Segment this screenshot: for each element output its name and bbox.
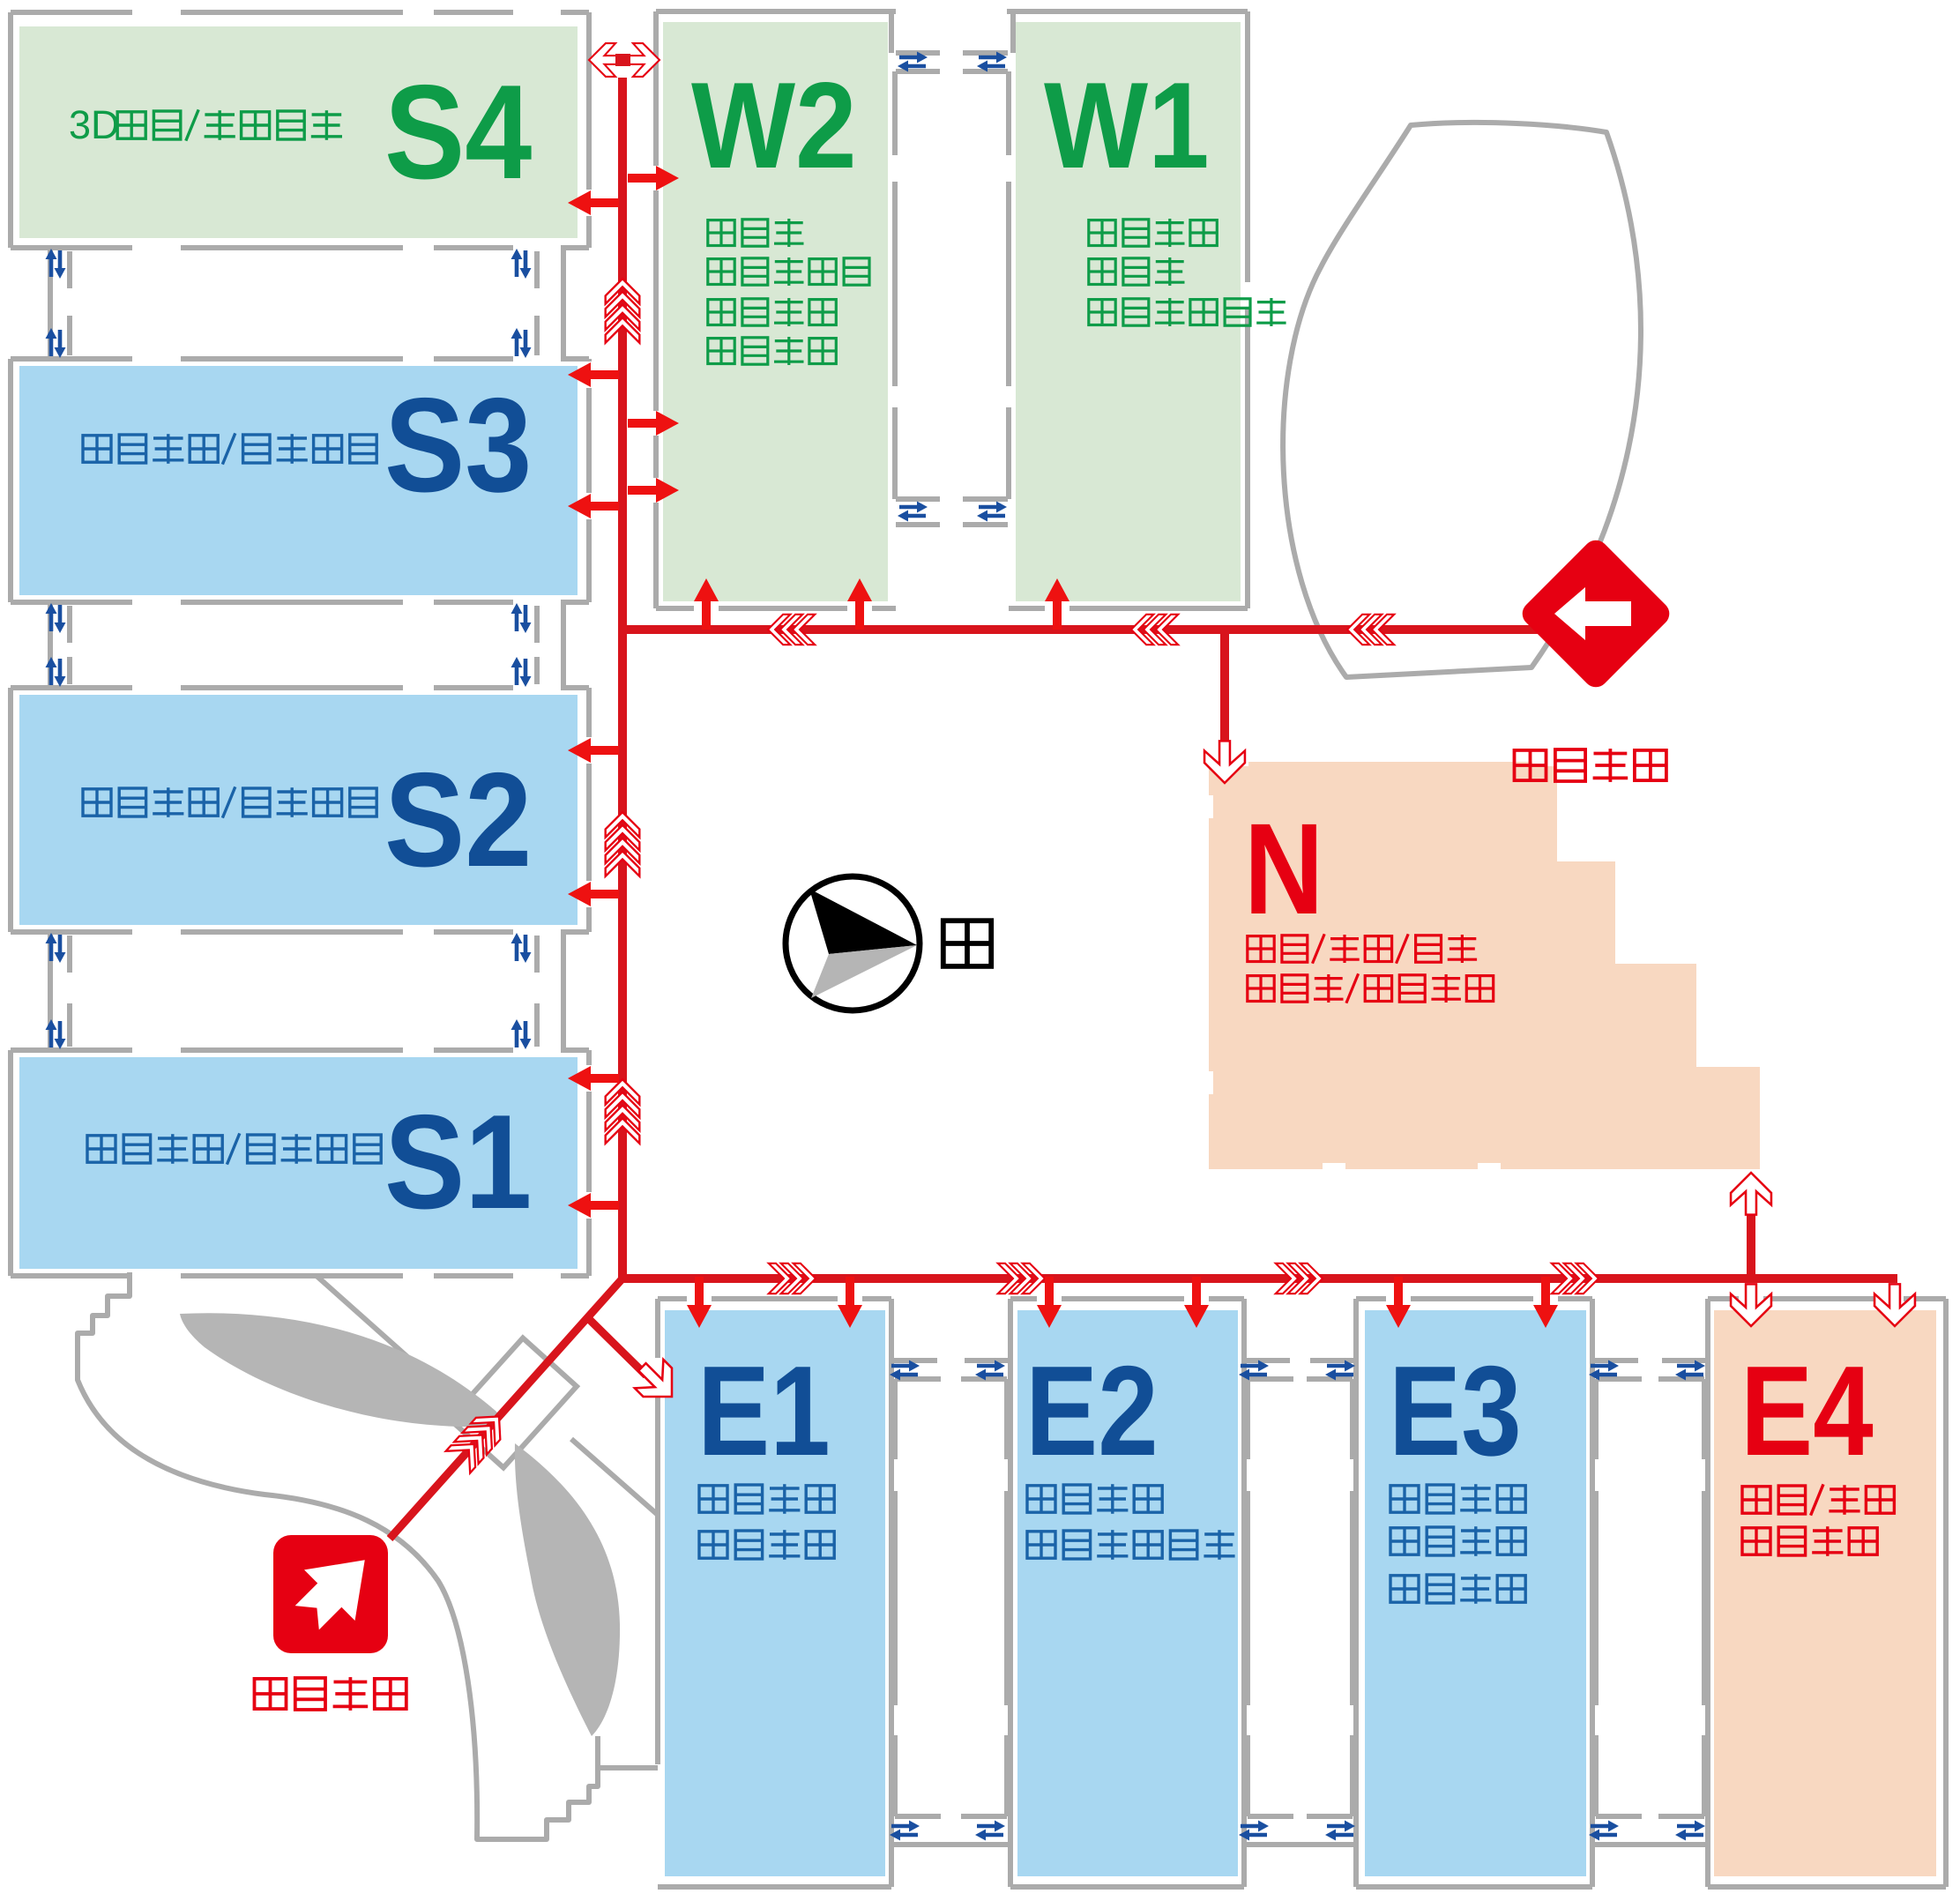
svg-text:E2: E2 xyxy=(1025,1339,1159,1483)
svg-text:E3: E3 xyxy=(1389,1339,1522,1483)
svg-text:S2: S2 xyxy=(384,744,532,894)
svg-text:W2: W2 xyxy=(691,57,857,195)
svg-text:S1: S1 xyxy=(384,1086,532,1236)
svg-text:3D: 3D xyxy=(69,102,120,147)
svg-text:N: N xyxy=(1244,796,1323,941)
svg-text:S4: S4 xyxy=(384,56,532,206)
svg-text:E4: E4 xyxy=(1740,1339,1874,1483)
svg-text:S3: S3 xyxy=(384,369,532,519)
svg-text:E1: E1 xyxy=(697,1339,831,1483)
svg-text:W1: W1 xyxy=(1044,57,1210,195)
